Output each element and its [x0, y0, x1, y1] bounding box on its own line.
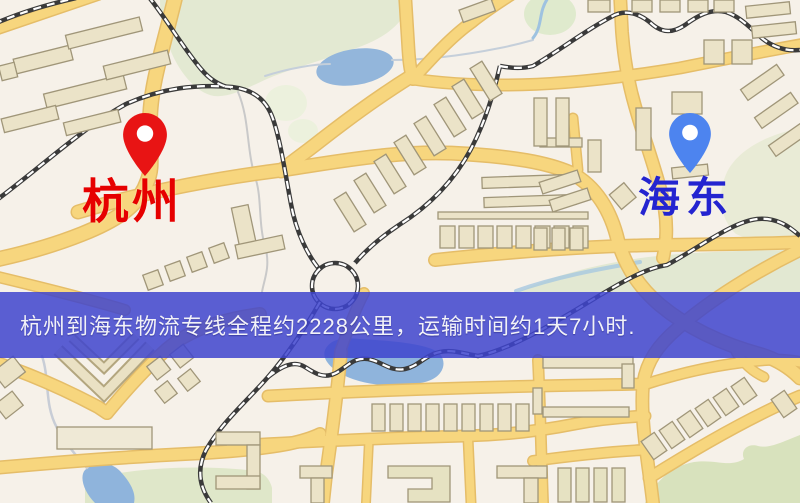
origin-label: 杭州 [82, 179, 182, 226]
destination-label: 海东 [638, 177, 734, 219]
origin-location-pin-icon[interactable] [123, 113, 167, 176]
route-info-banner: 杭州到海东物流专线全程约2228公里，运输时间约1天7小时. [0, 292, 800, 358]
map-canvas[interactable]: 杭州 海东 杭州到海东物流专线全程约2228公里，运输时间约1天7小时. [0, 0, 800, 503]
destination-location-pin-icon[interactable] [669, 113, 711, 173]
route-info-text: 杭州到海东物流专线全程约2228公里，运输时间约1天7小时. [0, 309, 636, 341]
base-map [0, 0, 800, 503]
